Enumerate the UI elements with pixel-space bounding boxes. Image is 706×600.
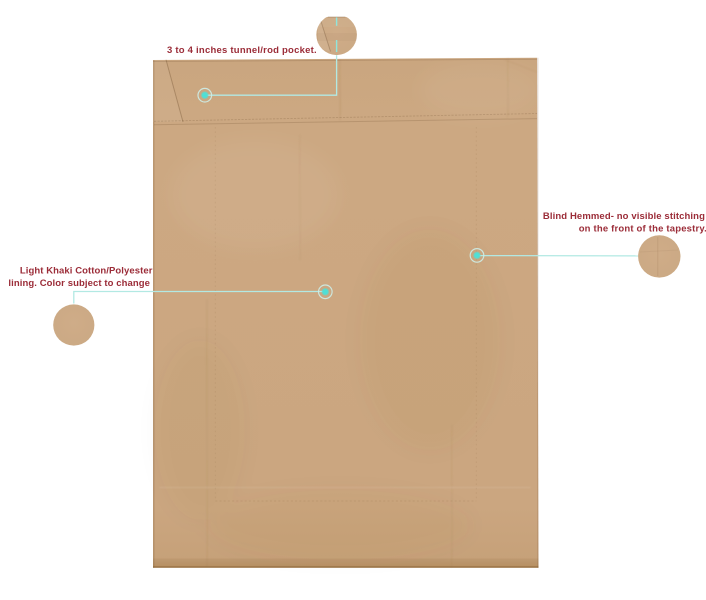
svg-text:Blind Hemmed- no visible stitc: Blind Hemmed- no visible stitching (543, 211, 705, 222)
svg-text:lining. Color subject to chang: lining. Color subject to change (8, 278, 150, 289)
svg-text:Light Khaki Cotton/Polyester: Light Khaki Cotton/Polyester (20, 266, 153, 277)
svg-text:on the front of the tapestry.: on the front of the tapestry. (579, 224, 706, 235)
svg-text:3 to 4 inches tunnel/rod pocke: 3 to 4 inches tunnel/rod pocket. (167, 45, 317, 56)
